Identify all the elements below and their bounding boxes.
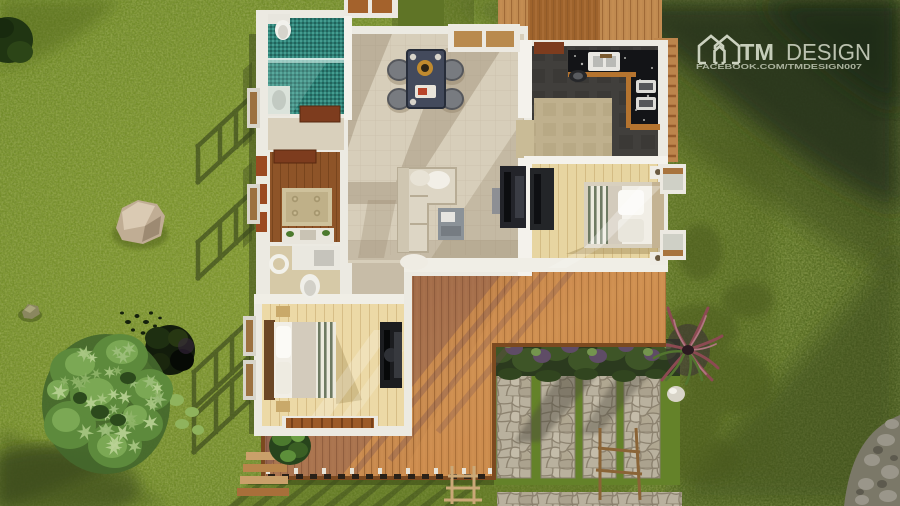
svg-text:TM: TM <box>740 39 774 65</box>
svg-text:FACEBOOK.COM/TMDESIGN007: FACEBOOK.COM/TMDESIGN007 <box>696 64 862 71</box>
svg-text:DESIGN: DESIGN <box>786 39 871 65</box>
